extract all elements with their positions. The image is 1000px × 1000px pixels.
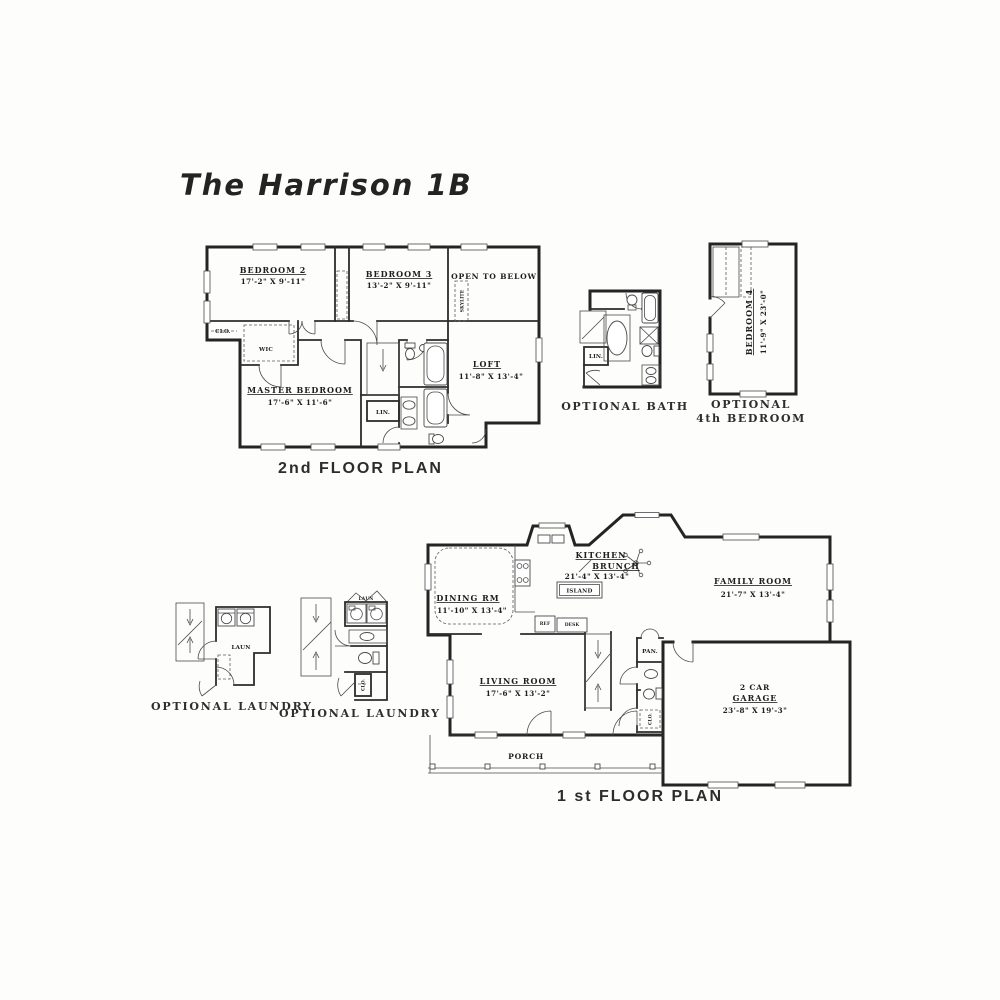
caption-line1: OPTIONAL xyxy=(688,398,814,412)
second-floor-caption: 2nd FLOOR PLAN xyxy=(243,460,478,478)
optional-laundry-left-caption: OPTIONAL LAUNDRY xyxy=(151,700,291,714)
open-to-below-label: OPEN TO BELOW xyxy=(451,272,537,281)
kitchen-label: KITCHEN xyxy=(576,550,627,560)
garage-label-2: GARAGE xyxy=(733,693,778,703)
laun-label: LAUN xyxy=(359,597,374,602)
optional-laundry-left-drawing: LAUN xyxy=(158,597,282,697)
laun-label: LAUN xyxy=(231,645,250,651)
first-floor-plan-drawing: DINING RM 11'-10" X 13'-4" KITCHEN BRUNC… xyxy=(423,512,858,792)
ref-label: REF xyxy=(540,622,551,627)
garage-dims: 23'-8" X 19'-3" xyxy=(723,706,787,715)
bedroom4-dims: 11'-9" X 23'-0" xyxy=(759,290,768,354)
brunch-label: BRUNCH xyxy=(592,561,640,571)
clo-label: CLO. xyxy=(362,679,367,691)
optional-bath-drawing: LIN. xyxy=(576,283,672,395)
bedroom4-label: BEDROOM 4 xyxy=(744,289,754,356)
exterior-walls xyxy=(428,515,850,785)
bedroom3-label: BEDROOM 3 xyxy=(366,269,433,279)
sink-icon xyxy=(646,377,656,384)
stairs-icon xyxy=(580,311,606,343)
toilet-icon xyxy=(359,653,372,664)
sink-icon xyxy=(403,417,415,425)
bathroom-fixtures xyxy=(401,343,447,444)
wic-label: WIC xyxy=(258,347,273,353)
clo-label: CLO. xyxy=(215,329,231,335)
optional-bath-caption: OPTIONAL BATH xyxy=(559,400,691,414)
washer-dryer-icons xyxy=(218,609,254,626)
porch-rail xyxy=(428,735,663,773)
tub-icon xyxy=(424,343,447,385)
hall-chase-closet xyxy=(337,271,347,319)
window-marks xyxy=(425,513,833,789)
first-floor-caption: 1 st FLOOR PLAN xyxy=(525,788,755,806)
master-bedroom-label: MASTER BEDROOM xyxy=(247,385,353,395)
desk-label: DESK xyxy=(565,623,580,628)
master-bedroom-dims: 17'-6" X 11'-6" xyxy=(268,398,332,407)
page: { "page": {"bg": "#fdfdfc", "ink": "#2c2… xyxy=(0,0,1000,1000)
living-room-label: LIVING ROOM xyxy=(480,676,557,686)
skylite-label: SKYLITE xyxy=(461,289,466,312)
loft-label: LOFT xyxy=(473,359,501,369)
caption-line2: 4th BEDROOM xyxy=(688,412,814,426)
bedroom2-dims: 17'-2" X 9'-11" xyxy=(241,277,305,286)
family-room-label: FAMILY ROOM xyxy=(714,576,792,586)
toilet-icon xyxy=(644,689,655,699)
optional-bedroom4-caption: OPTIONAL 4th BEDROOM xyxy=(688,398,814,427)
living-room-dims: 17'-6" X 13'-2" xyxy=(486,689,550,698)
loft-dims: 11'-8" X 13'-4" xyxy=(459,372,523,381)
sink-icon xyxy=(645,670,658,679)
tub-icon xyxy=(424,389,447,427)
lin-label: LIN. xyxy=(376,410,390,416)
stairs-icon xyxy=(176,603,204,661)
stairs-icon xyxy=(585,634,611,708)
kitchen-dims: 21'-4" X 13'-4" xyxy=(565,572,629,581)
sink-icon xyxy=(646,368,656,375)
second-floor-plan-drawing: SKYLITE BEDROOM 2 17'-2" X 9'-11" BEDROO… xyxy=(203,243,543,458)
garden-tub-icon xyxy=(607,321,627,355)
washer-dryer-icons xyxy=(347,604,386,623)
family-room-dims: 21'-7" X 13'-4" xyxy=(721,590,785,599)
wic-rod-lines xyxy=(244,325,294,361)
toilet-icon xyxy=(642,346,652,357)
cooktop-icon xyxy=(515,560,530,586)
optional-laundry-right-caption: OPTIONAL LAUNDRY xyxy=(279,707,421,721)
porch-label: PORCH xyxy=(508,752,544,761)
bath-fixtures xyxy=(604,293,660,385)
dining-label: DINING RM xyxy=(436,593,499,603)
door-swings xyxy=(710,296,725,318)
pantry-label: PAN. xyxy=(642,649,658,655)
clo-label: CLO. xyxy=(649,713,654,725)
bedroom2-label: BEDROOM 2 xyxy=(240,265,307,275)
page-title: The Harrison 1B xyxy=(180,168,473,202)
toilet-icon xyxy=(433,435,444,444)
sink-icon xyxy=(360,633,374,641)
optional-bedroom4-drawing: BEDROOM 4 11'-9" X 23'-0" xyxy=(700,238,810,400)
stairs-icon xyxy=(367,343,399,395)
door-swings xyxy=(335,630,355,696)
lin-label: LIN. xyxy=(589,354,603,360)
sink-icon xyxy=(538,535,550,543)
toilet-icon xyxy=(406,349,415,360)
island-label: ISLAND xyxy=(566,589,592,595)
stairs-icon xyxy=(301,598,331,676)
optional-laundry-right-drawing: LAUN CLO. xyxy=(285,588,411,706)
bedroom3-dims: 13'-2" X 9'-11" xyxy=(367,281,431,290)
pedestal-sink-icon xyxy=(627,295,637,305)
bath-fixtures xyxy=(349,630,387,696)
sink-icon xyxy=(403,401,415,409)
sink-icon xyxy=(552,535,564,543)
skylite-box: SKYLITE xyxy=(455,281,468,321)
dining-dims: 11'-10" X 13'-4" xyxy=(437,606,507,615)
garage-label-1: 2 CAR xyxy=(740,683,770,692)
door-swings xyxy=(259,321,486,443)
